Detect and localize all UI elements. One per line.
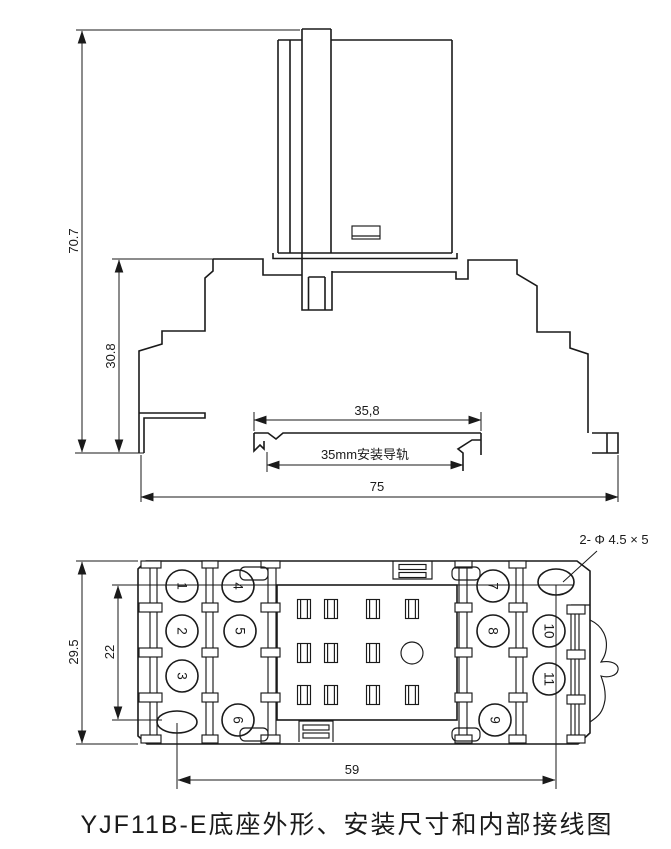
- socket-profile: [139, 259, 618, 453]
- terminal-4: 4: [222, 570, 254, 602]
- hole-span-label: 59: [345, 762, 359, 777]
- drawing-caption: YJF11B-E底座外形、安装尺寸和内部接线图: [80, 811, 613, 839]
- terminal-11-label: 11: [542, 672, 557, 686]
- hole-note-label: 2- Φ 4.5 × 5: [579, 532, 648, 547]
- terminal-4-label: 4: [231, 582, 246, 590]
- hole-callout: 2- Φ 4.5 × 5: [563, 532, 649, 582]
- terminal-9: 9: [479, 704, 511, 736]
- relay-clip-strip: [302, 29, 331, 259]
- terminal-7-label: 7: [486, 582, 501, 590]
- keying-tab-top: [393, 561, 432, 579]
- terminal-2-label: 2: [175, 627, 190, 635]
- relay-window: [352, 226, 380, 239]
- plan-height-label: 29.5: [66, 639, 81, 664]
- dimension-mounting-rail: 35mm安装导轨: [267, 447, 463, 472]
- terminal-11: 11: [533, 663, 565, 695]
- terminal-10-label: 10: [542, 623, 557, 638]
- dimension-socket-height: 30.8: [103, 259, 263, 452]
- terminal-8: 8: [477, 615, 509, 647]
- mounting-rail-label: 35mm安装导轨: [321, 447, 409, 462]
- overall-width-label: 75: [370, 479, 384, 494]
- overall-height-label: 70.7: [66, 228, 81, 253]
- locator-hole: [401, 642, 423, 664]
- plan-view: 1 2 3 4 5 6 7 8 9 10 11: [66, 532, 649, 789]
- terminal-1: 1: [166, 570, 198, 602]
- relay-socket-drawing: 70.7 30.8 35,8 35mm安装导轨 75: [0, 0, 671, 849]
- technical-drawing-page: 70.7 30.8 35,8 35mm安装导轨 75: [0, 0, 671, 849]
- keying-tab-bottom: [299, 721, 333, 742]
- side-view: 70.7 30.8 35,8 35mm安装导轨 75: [66, 29, 618, 502]
- terminal-6: 6: [222, 704, 254, 736]
- terminal-1-label: 1: [175, 582, 190, 590]
- contact-slot: [298, 600, 419, 705]
- dimension-overall-height: 70.7: [66, 30, 300, 452]
- rail-clip-foot: [592, 433, 618, 453]
- dimension-rail-top-width: 35,8: [254, 403, 481, 431]
- terminal-3: 3: [166, 660, 198, 692]
- socket-height-label: 30.8: [103, 343, 118, 368]
- terminal-2: 2: [166, 615, 198, 647]
- terminal-7: 7: [477, 570, 509, 602]
- terminal-10: 10: [533, 615, 565, 647]
- terminal-9-label: 9: [488, 716, 503, 724]
- terminals: 1 2 3 4 5 6 7 8 9 10 11: [166, 570, 565, 736]
- rail-top-width-label: 35,8: [354, 403, 379, 418]
- terminal-5: 5: [224, 615, 256, 647]
- terminal-span-label: 22: [102, 645, 117, 659]
- terminal-6-label: 6: [231, 716, 246, 724]
- grip-scallop: [590, 620, 618, 722]
- terminal-5-label: 5: [233, 627, 248, 635]
- relay-body-outline: [273, 29, 457, 259]
- terminal-8-label: 8: [486, 627, 501, 635]
- terminal-3-label: 3: [175, 672, 190, 680]
- contact-recess: [277, 561, 457, 742]
